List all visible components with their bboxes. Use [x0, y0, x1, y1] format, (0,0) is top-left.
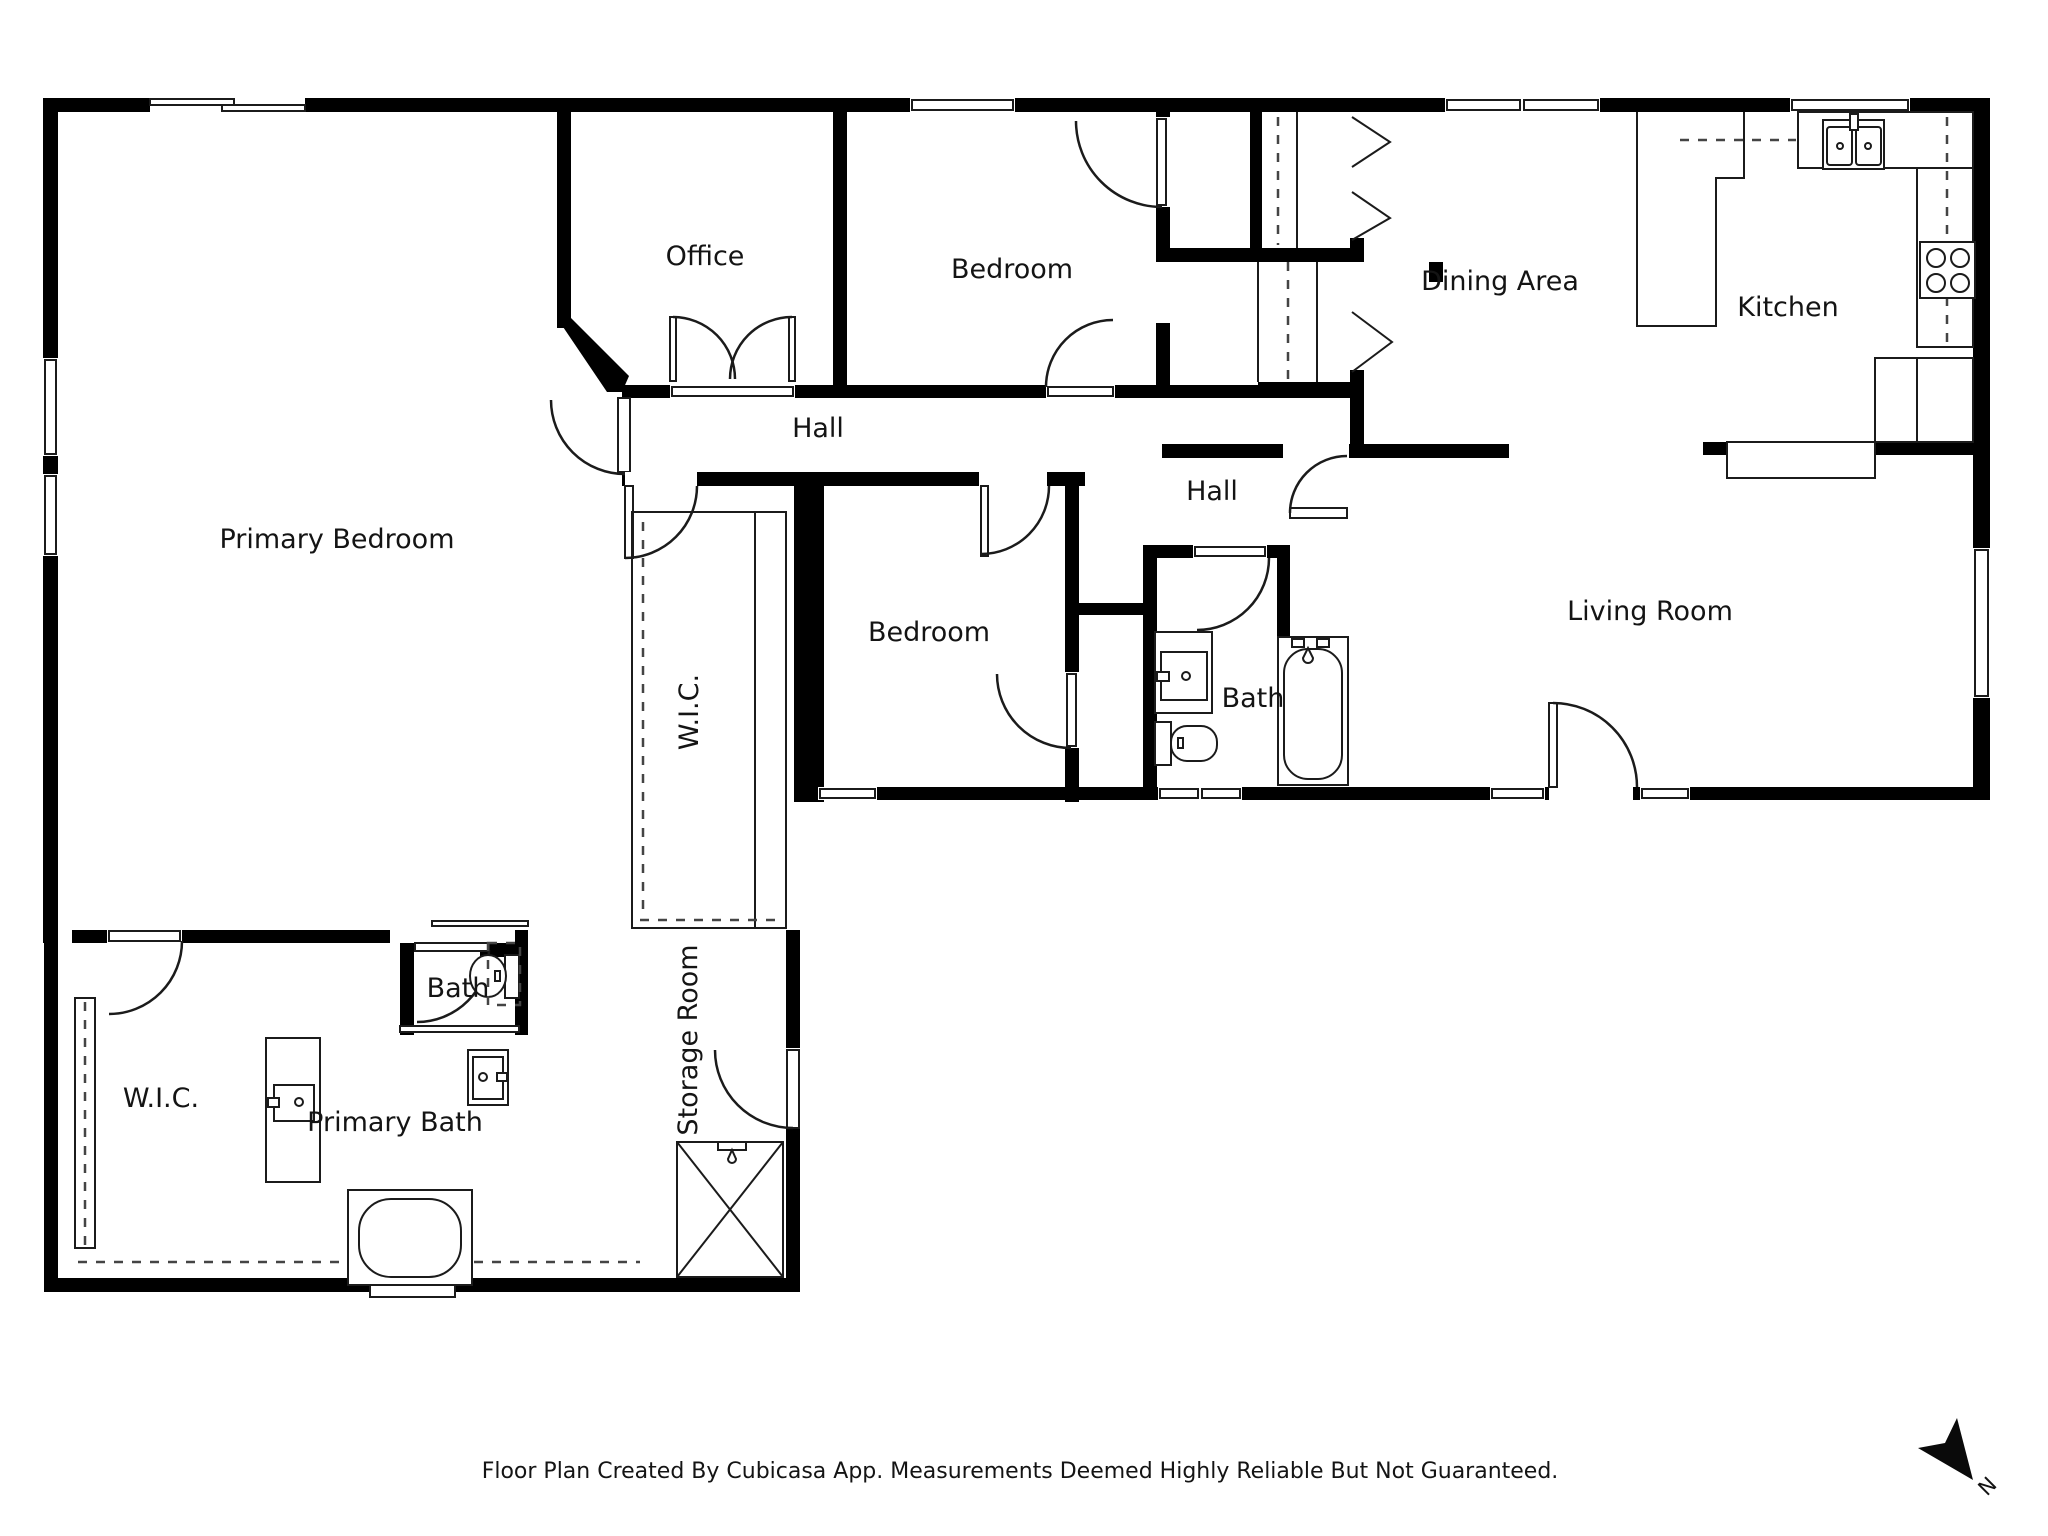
window-bedroom-middle	[818, 787, 877, 800]
window-living-east	[1973, 548, 1990, 698]
footer-disclaimer: Floor Plan Created By Cubicasa App. Meas…	[482, 1459, 1559, 1484]
door-bath-hall	[1193, 545, 1269, 630]
room-labels: Primary Bedroom Office Bedroom Dining Ar…	[123, 241, 1839, 1138]
window-bath-hall	[1158, 787, 1242, 800]
fridge-icon	[1875, 358, 1973, 442]
door-wic-corridor	[625, 472, 697, 558]
room-label-wic-corridor: W.I.C.	[674, 674, 705, 750]
window-primary-bedroom-top	[150, 98, 305, 112]
door-primary-bedroom	[551, 398, 630, 474]
room-label-primary-bath: Primary Bath	[307, 1107, 483, 1138]
room-label-hall-east: Hall	[1186, 476, 1238, 507]
room-label-kitchen: Kitchen	[1737, 292, 1838, 323]
bathtub-icon	[348, 1190, 472, 1297]
vanity-sink-icon	[1155, 632, 1212, 713]
north-label: N	[1973, 1472, 2001, 1500]
room-label-bath-hall: Bath	[1222, 683, 1285, 714]
window-primary-bedroom-left-1	[43, 358, 58, 456]
door-hall-corridor	[1283, 444, 1349, 518]
room-label-dining-area: Dining Area	[1421, 266, 1579, 297]
bifold-door-icon	[1352, 192, 1390, 240]
opening-header	[432, 921, 528, 926]
windows	[43, 98, 1990, 926]
north-arrow-icon: N	[1918, 1418, 2001, 1500]
room-label-wic-bottom: W.I.C.	[123, 1083, 199, 1114]
peninsula-counter	[1727, 442, 1875, 478]
room-label-bedroom-middle: Bedroom	[868, 617, 990, 648]
room-label-living-room: Living Room	[1567, 596, 1733, 627]
door-bedroom-top-closet	[1076, 117, 1170, 207]
door-office-double	[670, 317, 795, 398]
kitchen-sink-icon	[1823, 114, 1884, 169]
shower-icon	[677, 1142, 783, 1277]
door-bedroom-middle-closet	[997, 672, 1079, 748]
window-bedroom-top	[910, 98, 1015, 112]
floor-plan-drawing: Primary Bedroom Office Bedroom Dining Ar…	[0, 0, 2048, 1536]
window-primary-bedroom-left-2	[43, 474, 58, 556]
room-label-primary-bedroom: Primary Bedroom	[219, 524, 454, 555]
bifold-door-icon	[1352, 312, 1392, 372]
door-living-entry	[1549, 703, 1637, 800]
room-label-hall-west: Hall	[792, 413, 844, 444]
bathtub-icon	[1278, 637, 1348, 785]
floor-plan-page: Primary Bedroom Office Bedroom Dining Ar…	[0, 0, 2048, 1536]
room-label-bath-primary: Bath	[427, 973, 490, 1004]
window-living-south-1	[1490, 787, 1545, 800]
door-bedroom-top-hall	[1046, 320, 1115, 398]
window-kitchen	[1790, 98, 1910, 112]
vanity-sink-icon	[468, 1050, 508, 1105]
toilet-icon	[1155, 722, 1217, 765]
window-living-south-2	[1640, 787, 1690, 800]
room-label-bedroom-top: Bedroom	[951, 254, 1073, 285]
door-wic-bottom	[107, 930, 182, 1014]
door-storage	[715, 1048, 800, 1128]
room-label-storage-room: Storage Room	[673, 944, 704, 1135]
window-dining	[1445, 98, 1600, 112]
counter-l	[1637, 112, 1744, 326]
bifold-door-icon	[1352, 117, 1390, 167]
room-label-office: Office	[666, 241, 745, 272]
stove-icon	[1920, 242, 1975, 298]
nook-edge	[400, 1026, 519, 1032]
door-bedroom-middle-top	[979, 472, 1049, 556]
